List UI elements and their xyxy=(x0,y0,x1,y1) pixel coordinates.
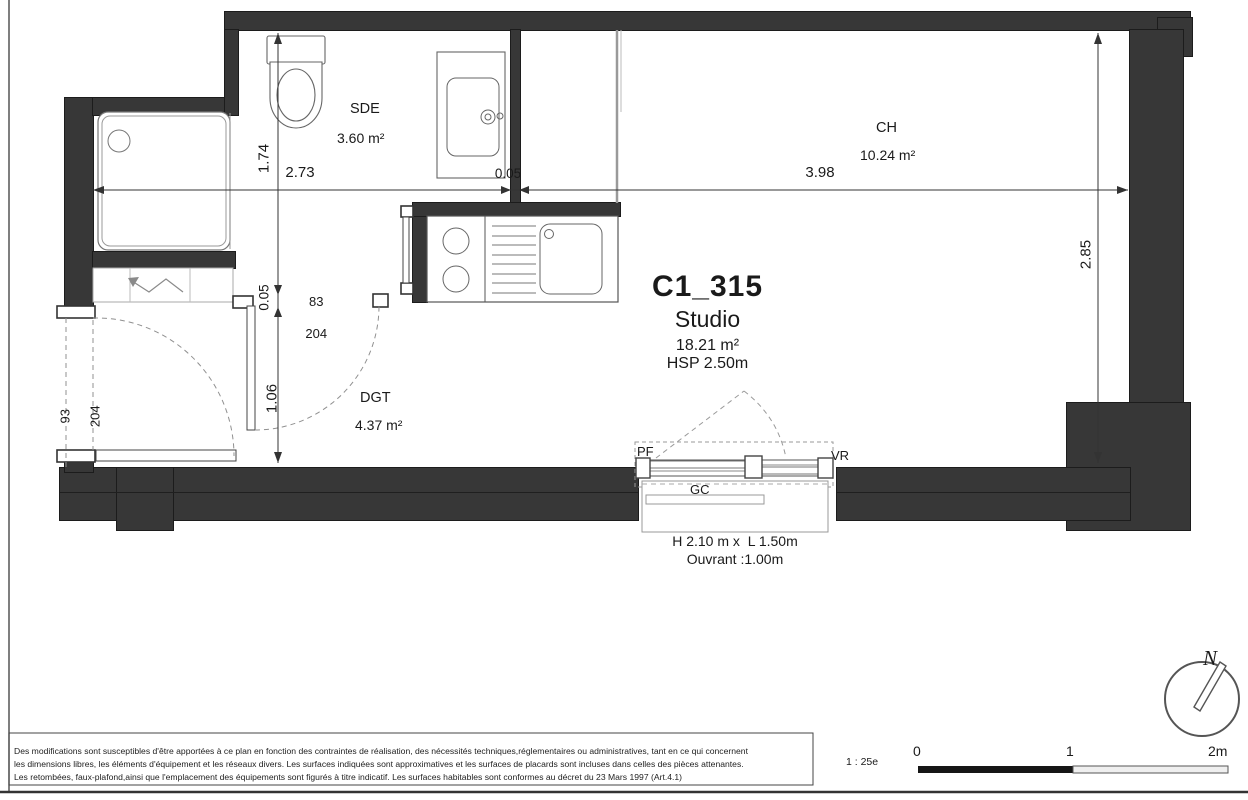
entrance-door-leaf xyxy=(96,450,236,461)
kitchen-door xyxy=(401,206,413,294)
sde-door-size: 83 204 xyxy=(288,278,330,358)
entrance-door-width: 93 xyxy=(58,409,73,423)
room-area-dgt: 4.37 m² xyxy=(355,417,402,433)
toilet xyxy=(267,36,325,128)
dim-wall-thickness: 0.05 xyxy=(257,278,272,318)
room-area-ch: 10.24 m² xyxy=(860,147,915,163)
kitchenette xyxy=(427,216,618,302)
room-label-ch: CH xyxy=(876,120,897,136)
scale-label: 1 : 25e xyxy=(846,756,878,768)
window-label-vr: VR xyxy=(831,448,849,463)
scale-tick-0: 0 xyxy=(913,743,921,759)
closet xyxy=(93,268,233,302)
disclaimer-line-1: Des modifications sont susceptibles d'êt… xyxy=(14,745,748,758)
unit-type: Studio xyxy=(600,306,815,333)
kitchen-door-leaf xyxy=(403,217,409,283)
sde-door-width: 83 xyxy=(309,294,323,309)
window-leaf-pf xyxy=(650,461,746,468)
room-label-sde: SDE xyxy=(350,101,380,117)
window-leaf-fixed xyxy=(762,467,818,474)
sde-door-leaf xyxy=(247,306,255,430)
dim-ch-depth: 2.85 xyxy=(1078,235,1095,275)
room-label-dgt: DGT xyxy=(360,390,391,406)
sde-door-height: 204 xyxy=(305,326,327,341)
shower-drain-icon xyxy=(108,130,130,152)
dim-ch-width: 3.98 xyxy=(790,164,850,181)
unit-ceiling-height: HSP 2.50m xyxy=(600,355,815,373)
scale-bar xyxy=(918,766,1228,773)
kitchen-sink xyxy=(540,224,602,294)
window-swing-arc xyxy=(744,391,786,458)
unit-area: 18.21 m² xyxy=(600,337,815,355)
floor-plan-sheet: SDE 3.60 m² CH 10.24 m² DGT 4.37 m² C1_3… xyxy=(0,0,1248,800)
window-label-gc: GC xyxy=(690,482,710,497)
dim-partition: 0.05 xyxy=(488,166,528,181)
unit-id: C1_315 xyxy=(600,270,815,304)
disclaimer-line-3: Les retombées, faux-plafond,ainsi que l'… xyxy=(14,771,682,784)
window-swing xyxy=(656,391,744,458)
disclaimer-line-2: les dimensions libres, les éléments d'éq… xyxy=(14,758,744,771)
entrance-door-size: 93 204 xyxy=(43,398,118,450)
window-opening: Ouvrant :1.00m xyxy=(645,551,825,567)
plan-linework xyxy=(0,0,1248,800)
dim-entry-width: 1.06 xyxy=(264,379,281,419)
scale-tick-2m: 2m xyxy=(1208,743,1227,759)
entrance-door-height: 204 xyxy=(88,405,103,427)
washbasin xyxy=(437,52,505,178)
north-compass xyxy=(1165,662,1239,736)
dim-sde-width: 2.73 xyxy=(270,164,330,181)
window-label-pf: PF xyxy=(637,444,654,459)
dim-sde-depth: 1.74 xyxy=(256,139,273,179)
shower xyxy=(98,112,230,250)
room-area-sde: 3.60 m² xyxy=(337,130,384,146)
scale-tick-1: 1 xyxy=(1066,743,1074,759)
north-label: N xyxy=(1203,646,1217,671)
kitchen-zone-line xyxy=(617,30,621,203)
guardrail-gc xyxy=(642,481,828,532)
unit-title-block: C1_315 Studio 18.21 m² HSP 2.50m xyxy=(600,270,815,373)
window-size: H 2.10 m x L 1.50m xyxy=(645,533,825,549)
window-assembly xyxy=(635,391,833,532)
